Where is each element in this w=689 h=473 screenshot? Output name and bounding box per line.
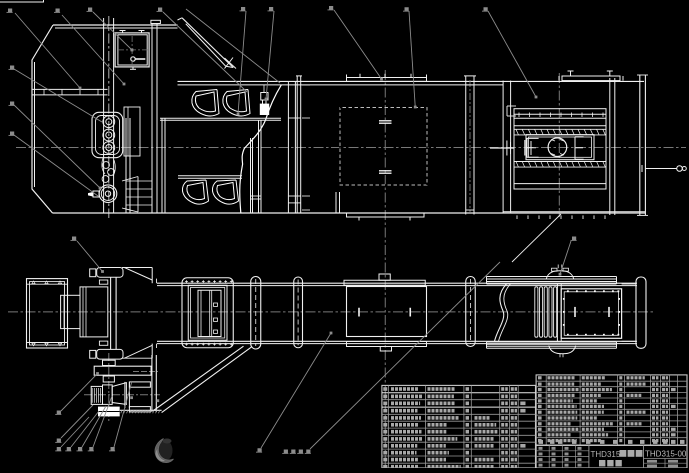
svg-text:THD315-00: THD315-00 xyxy=(645,450,687,459)
svg-text:THD315: THD315 xyxy=(591,450,621,459)
